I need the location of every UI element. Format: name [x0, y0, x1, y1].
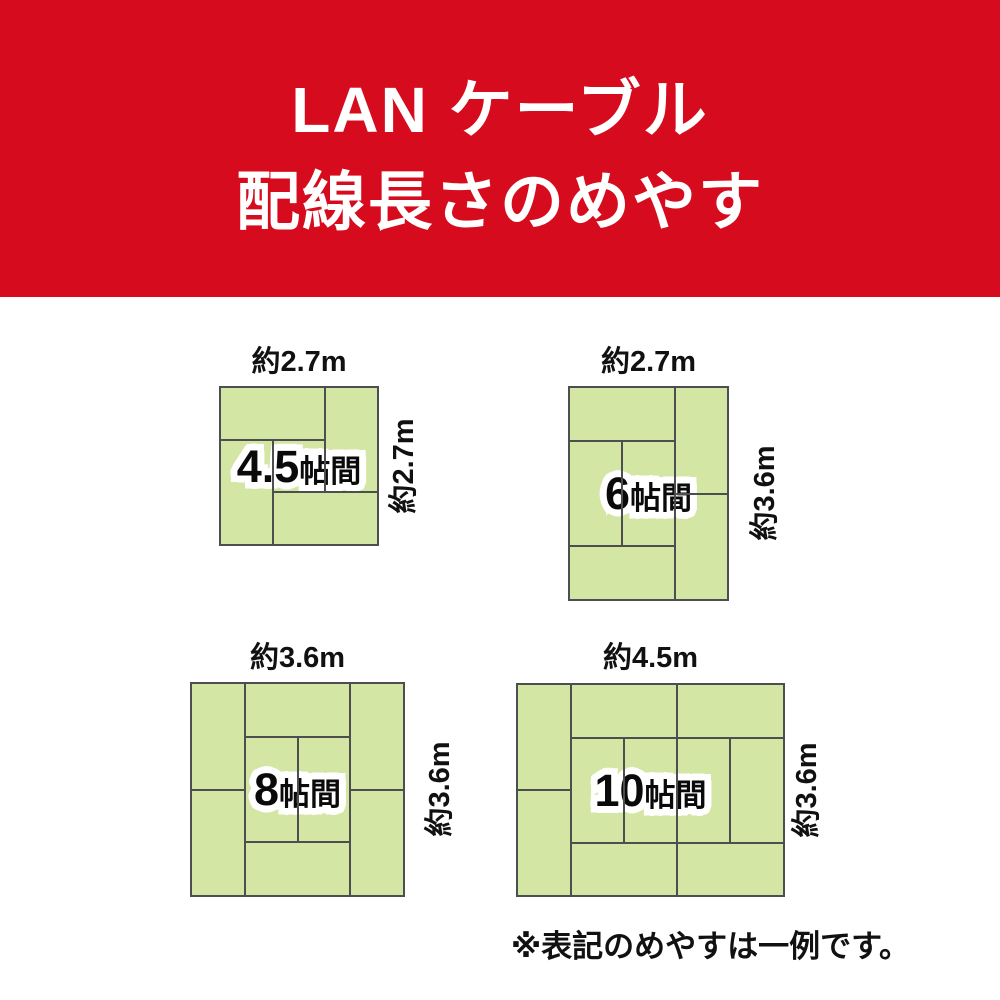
room-size-label-outline: 4.5帖間: [237, 444, 362, 489]
tatami-mat-divider: [570, 545, 675, 547]
room-4-5jo-size-label: 4.5帖間 4.5帖間: [221, 388, 377, 544]
room-4-5jo-width-label: 約2.7m: [219, 346, 379, 378]
tatami-mat-divider: [729, 738, 731, 843]
lan-cable-length-infographic: LAN ケーブル 配線長さのめやす 約2.7m 4.5帖間 4.5帖間 約2.7…: [0, 0, 1000, 1000]
tatami-mat-divider: [675, 493, 727, 495]
footnote: ※表記のめやすは一例です。: [511, 928, 910, 966]
room-8jo-height-label: 約3.6m: [423, 689, 457, 889]
room-6jo-height-label: 約3.6m: [748, 393, 782, 593]
tatami-mat-divider: [273, 491, 377, 493]
title-line-1: LAN ケーブル: [0, 78, 1000, 142]
room-size-label-text: 4.5帖間: [237, 444, 362, 489]
tatami-mat-divider: [676, 685, 678, 895]
tatami-mat-divider: [350, 789, 403, 791]
header-banner: LAN ケーブル 配線長さのめやす: [0, 0, 1000, 297]
title-line-2: 配線長さのめやす: [0, 170, 1000, 234]
room-size-label-text: 10帖間: [594, 768, 706, 813]
tatami-mat-divider: [571, 842, 783, 844]
room-8jo-floorplan: 8帖間 8帖間: [190, 682, 405, 897]
room-size-label-outline: 10帖間: [594, 768, 706, 813]
tatami-mat-divider: [621, 441, 623, 547]
tatami-mat-divider: [324, 388, 326, 492]
tatami-mat-divider: [623, 738, 625, 843]
room-8jo-width-label: 約3.6m: [190, 642, 405, 674]
tatami-mat-divider: [571, 737, 783, 739]
room-6jo-floorplan: 6帖間 6帖間: [568, 386, 729, 601]
tatami-mat-divider: [272, 440, 274, 544]
tatami-mat-divider: [518, 789, 571, 791]
room-10jo-floorplan: 10帖間 10帖間: [516, 683, 785, 897]
tatami-mat-divider: [192, 789, 245, 791]
room-4-5jo-height-label: 約2.7m: [387, 366, 421, 566]
tatami-mat-divider: [297, 737, 299, 843]
room-10jo-width-label: 約4.5m: [516, 642, 785, 674]
room-10jo-height-label: 約3.6m: [790, 690, 824, 890]
room-4-5jo-floorplan: 4.5帖間 4.5帖間: [219, 386, 379, 546]
room-6jo-width-label: 約2.7m: [568, 346, 729, 378]
